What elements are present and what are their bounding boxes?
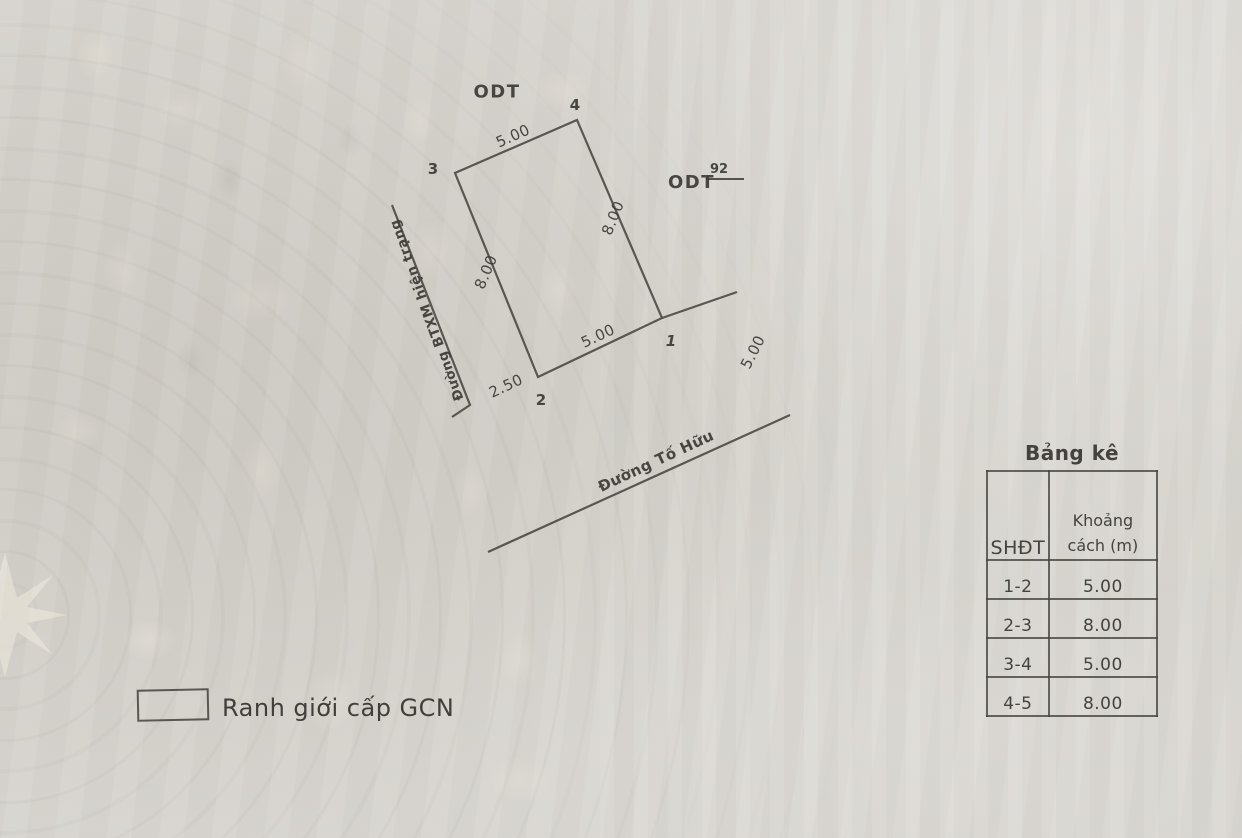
table-row: 2-3 8.00 — [987, 599, 1157, 638]
distance-table: SHĐT Khoảng cách (m) 1-2 5.00 2-3 8.00 3… — [986, 470, 1158, 717]
segment-distance: 8.00 — [1049, 677, 1157, 716]
table-row: 3-4 5.00 — [987, 638, 1157, 677]
col-header-distance: Khoảng cách (m) — [1049, 471, 1157, 560]
segment-distance: 5.00 — [1049, 638, 1157, 677]
point-label-4: 4 — [570, 96, 580, 114]
legend-boundary-symbol — [137, 688, 210, 722]
col-header-shdt: SHĐT — [987, 471, 1049, 560]
segment-id: 2-3 — [987, 599, 1049, 638]
point-label-2: 2 — [536, 391, 546, 409]
table-title: Bảng kê — [986, 441, 1158, 465]
dimension-extension-line — [662, 292, 737, 318]
table-row: 1-2 5.00 — [987, 560, 1157, 599]
parcel-number: 92 — [706, 162, 744, 180]
segment-id: 4-5 — [987, 677, 1049, 716]
road-to-huu-line — [488, 415, 790, 552]
segment-distance: 5.00 — [1049, 560, 1157, 599]
table-header-row: SHĐT Khoảng cách (m) — [987, 471, 1157, 560]
legend-boundary-label: Ranh giới cấp GCN — [222, 694, 454, 722]
zone-label-top: ODT — [473, 82, 520, 103]
distance-table-block: Bảng kê SHĐT Khoảng cách (m) 1-2 5.00 2-… — [986, 441, 1158, 717]
segment-id: 1-2 — [987, 560, 1049, 599]
segment-id: 3-4 — [987, 638, 1049, 677]
parcel-boundary — [455, 120, 662, 377]
scanned-cadastral-sketch: ODT ODT 92 4 3 2 1 5.00 8.00 8.00 5.00 2… — [0, 0, 1242, 838]
table-row: 4-5 8.00 — [987, 677, 1157, 716]
segment-distance: 8.00 — [1049, 599, 1157, 638]
point-label-1: 1 — [666, 332, 676, 350]
point-label-3: 3 — [428, 160, 438, 178]
